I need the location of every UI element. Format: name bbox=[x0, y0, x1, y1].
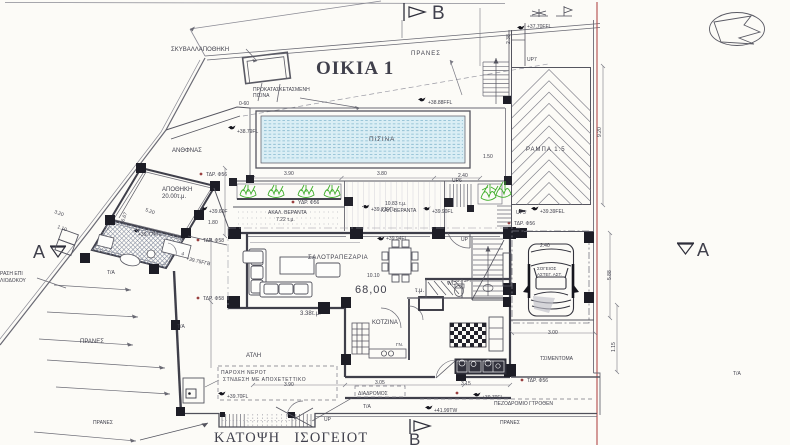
svg-text:ΛΙΟΔΟΚΟΥ: ΛΙΟΔΟΚΟΥ bbox=[0, 278, 27, 284]
svg-text:3.90: 3.90 bbox=[284, 171, 294, 177]
svg-text:A: A bbox=[33, 242, 45, 262]
svg-text:ΤΔΡ. Φ58: ΤΔΡ. Φ58 bbox=[203, 296, 224, 302]
svg-text:7.22 τ.μ.: 7.22 τ.μ. bbox=[276, 217, 295, 223]
svg-text:ΟΙΚΙΑ 1: ΟΙΚΙΑ 1 bbox=[316, 58, 394, 79]
svg-text:+39.60F: +39.60F bbox=[209, 209, 228, 215]
svg-text:ΑΚΑΛ. ΒΕΡΑΝΤΑ: ΑΚΑΛ. ΒΕΡΑΝΤΑ bbox=[268, 210, 307, 216]
svg-text:ΑΤΛΗ: ΑΤΛΗ bbox=[246, 353, 261, 359]
svg-text:ΑΠΟΘΗΚΗ: ΑΠΟΘΗΚΗ bbox=[162, 187, 192, 193]
svg-text:10.83 τ.μ.: 10.83 τ.μ. bbox=[385, 201, 407, 207]
svg-text:UP: UP bbox=[324, 417, 332, 423]
svg-text:ΠΡΑΝΕΣ: ΠΡΑΝΕΣ bbox=[80, 339, 104, 345]
svg-text:ΤΔΡ. Φ58: ΤΔΡ. Φ58 bbox=[203, 238, 224, 244]
svg-text:Τ/Α: Τ/Α bbox=[177, 324, 185, 330]
svg-text:20.00τ.μ.: 20.00τ.μ. bbox=[162, 194, 187, 200]
svg-text:+41.99TW: +41.99TW bbox=[434, 408, 457, 414]
svg-text:ΠΡΑΝΕΣ: ΠΡΑΝΕΣ bbox=[500, 420, 520, 426]
svg-text:ΡΑΜΠΑ 1:5: ΡΑΜΠΑ 1:5 bbox=[526, 147, 566, 153]
svg-text:ΥΔΡ. Φ56: ΥΔΡ. Φ56 bbox=[298, 200, 320, 206]
svg-text:+37.70FFL: +37.70FFL bbox=[527, 24, 552, 30]
svg-text:B: B bbox=[409, 430, 420, 445]
svg-text:2.38: 2.38 bbox=[506, 34, 512, 44]
svg-text:+39.94FL: +39.94FL bbox=[386, 236, 407, 242]
svg-text:+39.39FEL: +39.39FEL bbox=[540, 209, 565, 215]
svg-text:3.15: 3.15 bbox=[461, 381, 471, 387]
svg-text:ΚΟΤΖΙΝΑ: ΚΟΤΖΙΝΑ bbox=[372, 320, 398, 326]
svg-text:ΑΝΘΦΝΑΣ: ΑΝΘΦΝΑΣ bbox=[172, 148, 202, 154]
svg-text:3.00: 3.00 bbox=[548, 330, 558, 336]
svg-text:+39.70FL: +39.70FL bbox=[227, 394, 248, 400]
svg-text:Τ/Α: Τ/Α bbox=[107, 270, 115, 276]
svg-text:1.80: 1.80 bbox=[208, 220, 218, 226]
svg-text:ΤΔΡ. Φ56: ΤΔΡ. Φ56 bbox=[206, 172, 227, 178]
svg-text:2.40: 2.40 bbox=[540, 243, 550, 249]
svg-text:ΣΟΓΕΙΟΣ: ΣΟΓΕΙΟΣ bbox=[537, 266, 557, 271]
svg-text:A: A bbox=[697, 240, 709, 260]
svg-text:ΠΡΑΝΕΣ: ΠΡΑΝΕΣ bbox=[411, 51, 441, 57]
svg-text:+39.90FL: +39.90FL bbox=[432, 209, 453, 215]
svg-text:3.05: 3.05 bbox=[375, 380, 385, 386]
svg-text:1.15: 1.15 bbox=[611, 342, 617, 352]
svg-text:2.40: 2.40 bbox=[458, 173, 468, 179]
svg-text:+39.77FΓL: +39.77FΓL bbox=[138, 232, 162, 238]
svg-text:ΠΡΑΝΕΣ: ΠΡΑΝΕΣ bbox=[93, 420, 113, 426]
svg-text:ΤΔΡ. Φ56: ΤΔΡ. Φ56 bbox=[514, 221, 535, 227]
svg-text:10.10: 10.10 bbox=[367, 273, 380, 279]
svg-text:9.20: 9.20 bbox=[597, 127, 603, 137]
svg-text:ΑΣΤΕΓ. ΑΣΤ.: ΑΣΤΕΓ. ΑΣΤ. bbox=[537, 272, 562, 277]
svg-text:UP7: UP7 bbox=[527, 57, 537, 63]
svg-text:ΠΙΣΙΝΑ: ΠΙΣΙΝΑ bbox=[253, 93, 270, 99]
svg-text:Τ/Α: Τ/Α bbox=[733, 371, 741, 377]
svg-text:ΔΙΑΔΡΟΜΟΣ: ΔΙΑΔΡΟΜΟΣ bbox=[358, 391, 388, 397]
svg-text:1.50: 1.50 bbox=[483, 154, 493, 160]
svg-text:Τ/Α: Τ/Α bbox=[363, 404, 371, 410]
svg-text:ΤΣΙΜΕΝΤΟΜΑ: ΤΣΙΜΕΝΤΟΜΑ bbox=[540, 356, 574, 362]
svg-text:ΠΑΡΟΧΗ ΝΕΡΟΤ: ΠΑΡΟΧΗ ΝΕΡΟΤ bbox=[221, 370, 267, 376]
svg-text:3.80: 3.80 bbox=[377, 171, 387, 177]
svg-text:UP: UP bbox=[461, 237, 469, 243]
svg-text:ΚΑΤΟΨΗ ΙΣΟΓΕΙΟΤ: ΚΑΤΟΨΗ ΙΣΟΓΕΙΟΤ bbox=[214, 430, 368, 445]
svg-text:ΠΕΖΟΔΡΟΜΙΟ ΓΤΡΟΘΕΝ: ΠΕΖΟΔΡΟΜΙΟ ΓΤΡΟΘΕΝ bbox=[494, 401, 553, 407]
svg-text:ΣΚΥΒΑΛΛΑΠΟΘΗΚΗ: ΣΚΥΒΑΛΛΑΠΟΘΗΚΗ bbox=[171, 47, 229, 53]
svg-text:ΠΙΣΙΝΑ: ΠΙΣΙΝΑ bbox=[369, 136, 395, 143]
svg-text:ΡΑΣΗ ΕΠΙ: ΡΑΣΗ ΕΠΙ bbox=[0, 271, 23, 277]
svg-text:3.90: 3.90 bbox=[284, 382, 294, 388]
svg-text:0-60: 0-60 bbox=[239, 101, 249, 107]
svg-text:ΣΑΛΟΤΡΑΠΕΖΑΡΙΑ: ΣΑΛΟΤΡΑΠΕΖΑΡΙΑ bbox=[308, 255, 368, 261]
svg-text:+38.79FL: +38.79FL bbox=[237, 129, 258, 135]
svg-text:UP3: UP3 bbox=[516, 210, 526, 216]
svg-text:ΤΔΡ. Φ56: ΤΔΡ. Φ56 bbox=[527, 378, 548, 384]
svg-text:WC: WC bbox=[447, 281, 456, 287]
svg-text:ΓΝ.: ΓΝ. bbox=[396, 342, 403, 347]
svg-text:B: B bbox=[432, 3, 445, 24]
svg-text:68,00: 68,00 bbox=[355, 284, 388, 296]
svg-text:ΚΑΛ. ΒΕΡΑΝΤΑ: ΚΑΛ. ΒΕΡΑΝΤΑ bbox=[381, 208, 417, 214]
svg-text:+38.88FFL: +38.88FFL bbox=[428, 100, 453, 106]
svg-text:τ.μ.: τ.μ. bbox=[415, 288, 424, 294]
svg-text:3.38τ.μ.: 3.38τ.μ. bbox=[300, 311, 321, 317]
svg-text:5.88: 5.88 bbox=[607, 270, 613, 280]
